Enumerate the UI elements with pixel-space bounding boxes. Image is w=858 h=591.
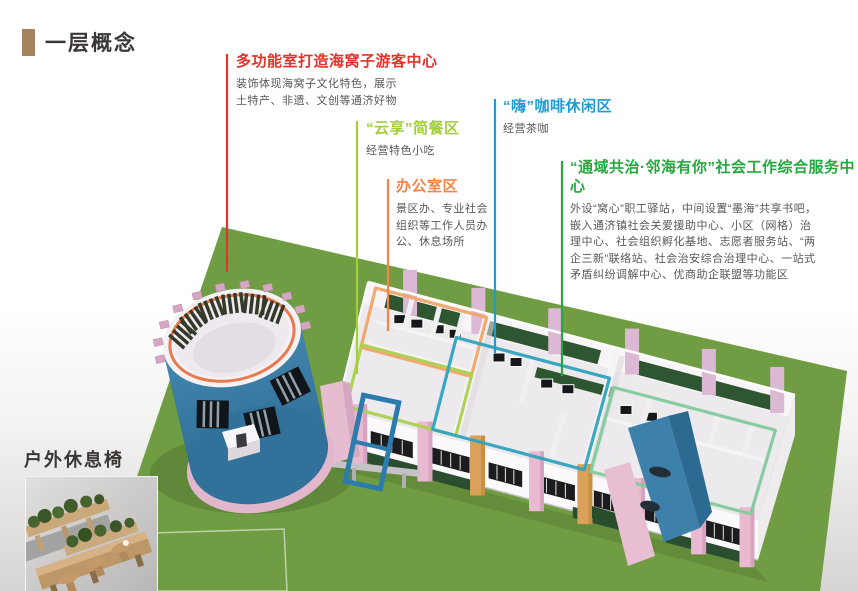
annotation-desc: 景区办、专业社会 组织等工作人员办 公、休息场所: [396, 201, 536, 251]
annotation-desc: 经营茶咖: [503, 121, 673, 138]
outdoor-bench-photo: [25, 476, 158, 591]
annotation-title: 办公室区: [396, 177, 536, 196]
page-title-text: 一层概念: [45, 27, 137, 57]
inset-label: 户外休息椅: [24, 446, 124, 472]
annotation-snack-bar: “云享”简餐区 经营特色小吃: [366, 119, 526, 160]
annotation-service-center: “通域共治·邻海有你”社会工作综合服务中心 外设“窝心”职工驿站，中间设置“墨海…: [570, 158, 858, 284]
annotation-desc: 外设“窝心”职工驿站，中间设置“墨海”共享书吧， 嵌入通济镇社会关爱援助中心、小…: [570, 201, 858, 284]
annotation-desc: 装饰体现海窝子文化特色，展示 土特产、非遗、文创等通济好物: [236, 76, 486, 109]
title-bullet: [22, 29, 35, 56]
infographic-page: 一层概念 多功能室打造海窝子游客中心 装饰体现海窝子文化特色，展示 土特产、非遗…: [0, 0, 858, 591]
page-title: 一层概念: [22, 27, 137, 57]
annotation-title: “通域共治·邻海有你”社会工作综合服务中心: [570, 158, 858, 196]
annotation-title: 多功能室打造海窝子游客中心: [236, 52, 486, 71]
annotation-title: “嗨”咖啡休闲区: [503, 97, 673, 116]
annotation-coffee-lounge: “嗨”咖啡休闲区 经营茶咖: [503, 97, 673, 138]
outdoor-bench-illustration: [26, 477, 157, 591]
annotation-visitor-center: 多功能室打造海窝子游客中心 装饰体现海窝子文化特色，展示 土特产、非遗、文创等通…: [236, 52, 486, 109]
annotation-desc: 经营特色小吃: [366, 143, 526, 160]
annotation-title: “云享”简餐区: [366, 119, 526, 138]
annotation-office-area: 办公室区 景区办、专业社会 组织等工作人员办 公、休息场所: [396, 177, 536, 251]
